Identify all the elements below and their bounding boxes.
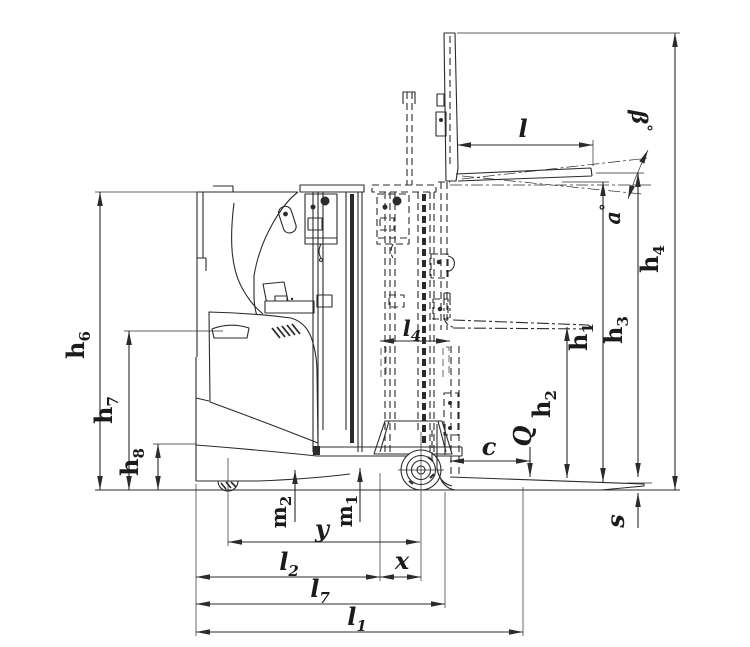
dim-l2: l2 xyxy=(196,547,380,580)
armrest-box xyxy=(265,296,314,313)
dim-label-l7: l7 xyxy=(310,574,330,607)
drawing-canvas: h6 h7 h8 h2 h1 h3 h4 xyxy=(0,0,750,647)
backrest-bolt xyxy=(439,118,443,122)
dim-label-h8: h8 xyxy=(115,448,148,476)
dim-label-q: Q xyxy=(508,425,537,446)
dim-load-q: Q xyxy=(508,425,537,477)
dim-h2: h2 xyxy=(527,327,567,478)
hose xyxy=(306,238,337,258)
dim-m2: m2 xyxy=(266,470,295,528)
dim-label-h6: h6 xyxy=(61,331,94,359)
bolt-dashed xyxy=(383,205,388,210)
armrest-knob xyxy=(291,298,293,300)
guard-rear-pillar xyxy=(196,192,209,401)
plate-detail xyxy=(308,218,322,230)
ext-line xyxy=(381,347,449,377)
dim-h7: h7 xyxy=(89,331,223,490)
roller-bolt-1 xyxy=(437,260,442,265)
battery-cover xyxy=(209,296,318,443)
dim-label-c: c xyxy=(482,432,497,461)
mast-extended-dashed xyxy=(372,182,454,452)
knob-body xyxy=(277,205,298,235)
dim-label-l1: l1 xyxy=(347,602,367,635)
roller-bolt-2 xyxy=(438,307,443,312)
dim-label-h4: h4 xyxy=(635,245,668,273)
dim-l7: l7 xyxy=(196,574,445,607)
plate-detail-dashed xyxy=(380,218,394,230)
angle-label-alpha: a° xyxy=(597,203,625,224)
pulley xyxy=(321,197,330,206)
dim-label-s: s xyxy=(601,514,630,529)
mast-clamp xyxy=(317,295,332,307)
mast-top-cap-dashed xyxy=(372,185,436,192)
guard-front-pillar xyxy=(254,192,298,298)
fork-blade-raised xyxy=(456,168,592,181)
dim-label-m1: m1 xyxy=(332,495,361,528)
knob-dot xyxy=(282,211,288,217)
dim-m1: m1 xyxy=(332,468,361,527)
mast-foot-bracket xyxy=(374,421,452,454)
dim-y: y xyxy=(228,514,420,543)
carriage-bolt-1 xyxy=(448,401,452,405)
dim-label-h2: h2 xyxy=(527,390,560,418)
dimensions: h6 h7 h8 h2 h1 h3 h4 xyxy=(61,33,680,636)
mast-retracted xyxy=(300,185,452,454)
leg-marker-block xyxy=(313,446,320,455)
dim-fork-length: l xyxy=(457,114,593,166)
mast-clamp-dashed xyxy=(389,295,404,307)
ext-lines-bottom xyxy=(196,432,523,636)
fork-blade-free-lift xyxy=(444,293,593,329)
dim-h8: h8 xyxy=(115,444,196,490)
dim-label-x: x xyxy=(394,546,410,575)
dim-label-y: y xyxy=(314,514,331,543)
pulley-dashed xyxy=(393,197,402,206)
dim-label-l4: l4 xyxy=(403,316,421,345)
load-backrest xyxy=(444,33,458,181)
hose-dashed xyxy=(378,238,409,258)
steering-knob xyxy=(277,205,298,235)
seat-cushion xyxy=(212,325,249,338)
inner-mast-cap xyxy=(403,92,415,104)
rear-tire-hatch xyxy=(221,482,236,489)
reach-truck-dimension-drawing: h6 h7 h8 h2 h1 h3 h4 xyxy=(0,0,750,647)
dim-label-l2: l2 xyxy=(279,547,299,580)
guard-roof-cap xyxy=(213,186,233,192)
dim-label-l: l xyxy=(518,114,527,143)
backrest-tab xyxy=(437,94,444,106)
dim-label-h1: h1 xyxy=(564,323,597,351)
angle-label-beta: β° xyxy=(627,109,655,131)
tilt-reference-lines xyxy=(450,158,652,194)
chassis-top-edge xyxy=(196,445,317,456)
fork-blade-lowered xyxy=(437,424,644,490)
dim-h4: h4 xyxy=(457,33,680,490)
dim-label-h7: h7 xyxy=(89,396,122,424)
fork-free-lift xyxy=(444,293,593,329)
hose-end xyxy=(320,259,323,262)
bolt xyxy=(311,205,316,210)
dim-x: x xyxy=(380,546,421,577)
dim-label-m2: m2 xyxy=(266,496,295,529)
inner-mast-dashed xyxy=(407,92,412,185)
dim-l1: l1 xyxy=(196,602,523,635)
carriage-bolt-2 xyxy=(448,426,452,430)
mast-top-cap xyxy=(300,185,364,192)
backrest-bracket xyxy=(436,112,446,136)
dim-label-h3: h3 xyxy=(599,316,632,344)
